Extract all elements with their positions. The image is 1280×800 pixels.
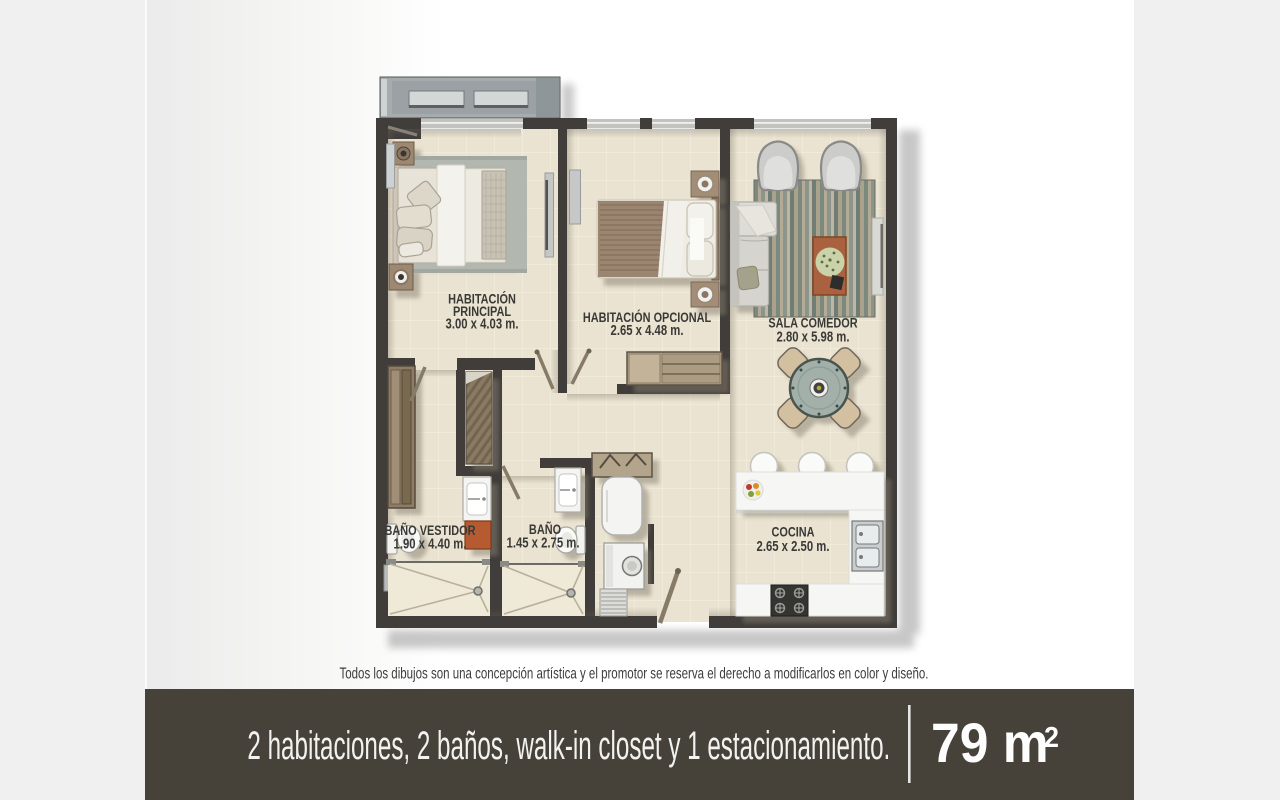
svg-text:1.90 x 4.40 m.: 1.90 x 4.40 m. — [394, 535, 467, 552]
svg-text:2 habitaciones, 2 baños, walk-: 2 habitaciones, 2 baños, walk-in closet … — [247, 723, 890, 768]
svg-text:2.80 x 5.98 m.: 2.80 x 5.98 m. — [777, 328, 850, 345]
svg-text:Todos los dibujos son una conc: Todos los dibujos son una concepción art… — [340, 665, 929, 682]
svg-text:2.65 x 2.50 m.: 2.65 x 2.50 m. — [757, 538, 830, 555]
svg-text:2.65 x 4.48 m.: 2.65 x 4.48 m. — [611, 322, 684, 339]
svg-text:2: 2 — [1044, 721, 1059, 753]
svg-text:79 m: 79 m — [931, 712, 1049, 774]
svg-text:3.00 x 4.03 m.: 3.00 x 4.03 m. — [446, 315, 519, 332]
svg-text:1.45 x 2.75 m.: 1.45 x 2.75 m. — [507, 534, 580, 551]
